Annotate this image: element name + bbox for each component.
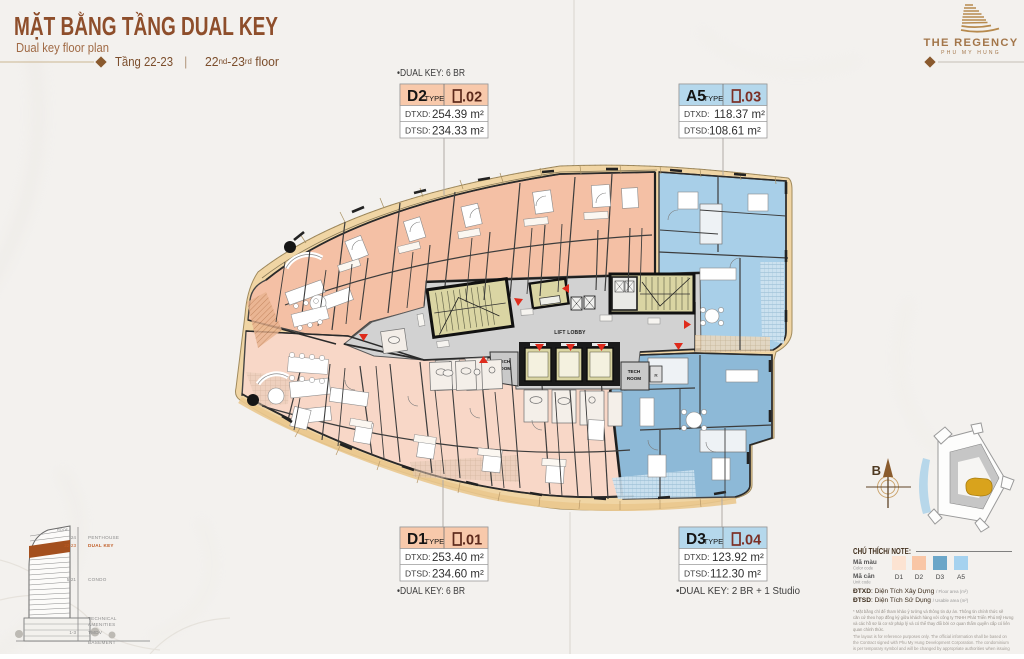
svg-text:ROOM: ROOM	[627, 376, 641, 381]
svg-text:và các hồ sơ là cơ sở pháp lý: và các hồ sơ là cơ sở pháp lý và có thể …	[853, 621, 1011, 626]
svg-text:234.60 m²: 234.60 m²	[432, 569, 484, 581]
svg-text:D3: D3	[936, 574, 945, 581]
svg-text:•DUAL KEY: 6 BR: •DUAL KEY: 6 BR	[397, 586, 465, 597]
svg-text:DTXD:: DTXD:	[684, 552, 710, 562]
svg-text:DTSD:: DTSD:	[405, 569, 431, 579]
svg-text:MẶT BẰNG TẦNG DUAL KEY: MẶT BẰNG TẦNG DUAL KEY	[14, 11, 278, 41]
svg-text:D1: D1	[895, 574, 904, 581]
svg-text:.02: .02	[462, 90, 482, 106]
svg-text:DTXD:: DTXD:	[684, 109, 710, 119]
svg-text:254.39 m²: 254.39 m²	[432, 109, 484, 121]
svg-text:234.33 m²: 234.33 m²	[432, 126, 484, 138]
svg-text:D2: D2	[915, 574, 924, 581]
svg-text:căn cứ theo hợp đồng ký giữa k: căn cứ theo hợp đồng ký giữa khách hàng …	[853, 615, 1014, 620]
svg-text:DUAL KEY: DUAL KEY	[88, 543, 114, 548]
svg-text:.01: .01	[462, 533, 482, 549]
svg-text:THE REGENCY: THE REGENCY	[923, 37, 1018, 49]
svg-text:123.92 m²: 123.92 m²	[712, 552, 764, 564]
svg-text:TYPE: TYPE	[704, 94, 724, 103]
svg-text:TECH: TECH	[628, 369, 641, 374]
svg-text:Tầng 22-23: Tầng 22-23	[115, 55, 173, 69]
svg-text:LIFT LOBBY: LIFT LOBBY	[554, 330, 586, 336]
svg-text:112.30 m²: 112.30 m²	[710, 569, 761, 581]
svg-text:B: B	[872, 463, 881, 478]
svg-text:24: 24	[71, 535, 77, 540]
svg-text:TMDV: TMDV	[88, 630, 103, 635]
svg-text:the Contract signed with Phu M: the Contract signed with Phu My Hung Dev…	[853, 640, 1009, 645]
svg-text:TYPE: TYPE	[425, 537, 445, 546]
svg-text:22nd-23rd floor: 22nd-23rd floor	[205, 55, 279, 69]
svg-text:.03: .03	[741, 90, 761, 106]
svg-text:CHÚ THÍCH/ NOTE:: CHÚ THÍCH/ NOTE:	[853, 547, 911, 556]
svg-text:Color code: Color code	[853, 566, 874, 571]
svg-text:|: |	[184, 54, 187, 69]
svg-text:DTXD:: DTXD:	[405, 552, 431, 562]
svg-text:A5: A5	[957, 574, 965, 581]
svg-text:TYPE: TYPE	[425, 94, 445, 103]
svg-text:CONDO: CONDO	[88, 577, 107, 582]
svg-text:TECHNICAL: TECHNICAL	[88, 616, 117, 621]
svg-text:BASEMENT: BASEMENT	[88, 640, 116, 645]
svg-text:ĐTSD: Diện Tích Sử Dụng / Usab: ĐTSD: Diện Tích Sử Dụng / Usable area (m…	[853, 596, 969, 604]
svg-text:•DUAL KEY: 2 BR + 1 Studio: •DUAL KEY: 2 BR + 1 Studio	[676, 586, 800, 597]
svg-text:Unit code: Unit code	[853, 580, 871, 585]
svg-text:PENTHOUSE: PENTHOUSE	[88, 535, 119, 540]
svg-text:DTXD:: DTXD:	[405, 109, 431, 119]
svg-text:AMENITIES: AMENITIES	[88, 622, 115, 627]
svg-text:DTSD:: DTSD:	[405, 126, 431, 136]
svg-text:TYPE: TYPE	[704, 537, 724, 546]
svg-text:22-23: 22-23	[64, 543, 76, 548]
svg-text:253.40 m²: 253.40 m²	[432, 552, 484, 564]
svg-text:1-3: 1-3	[69, 630, 76, 635]
svg-text:118.37 m²: 118.37 m²	[714, 109, 765, 121]
svg-text:* Mặt bằng chỉ để tham khảo ý: * Mặt bằng chỉ để tham khảo ý tưởng và t…	[853, 609, 1004, 614]
svg-text:Dual key floor plan: Dual key floor plan	[16, 41, 109, 55]
svg-text:5-21: 5-21	[67, 577, 77, 582]
svg-text:DTSD:: DTSD:	[684, 569, 710, 579]
svg-text:.04: .04	[741, 533, 761, 549]
svg-text:ROOF: ROOF	[57, 528, 69, 532]
svg-text:ĐTXD: Diện Tích Xây Dựng / Flo: ĐTXD: Diện Tích Xây Dựng / Floor area (m…	[853, 588, 968, 595]
svg-text:The layout is for reference pu: The layout is for reference purposes onl…	[853, 634, 1008, 639]
svg-text:DTSD:: DTSD:	[684, 126, 710, 136]
svg-text:PHU MY HUNG: PHU MY HUNG	[941, 50, 1001, 56]
svg-text:•DUAL KEY: 6 BR: •DUAL KEY: 6 BR	[397, 68, 465, 79]
svg-text:quan chính thức.: quan chính thức.	[853, 627, 884, 632]
svg-text:108.61 m²: 108.61 m²	[709, 126, 761, 138]
svg-text:is per temporary symbol and wi: is per temporary symbol and will be chan…	[853, 646, 1010, 651]
